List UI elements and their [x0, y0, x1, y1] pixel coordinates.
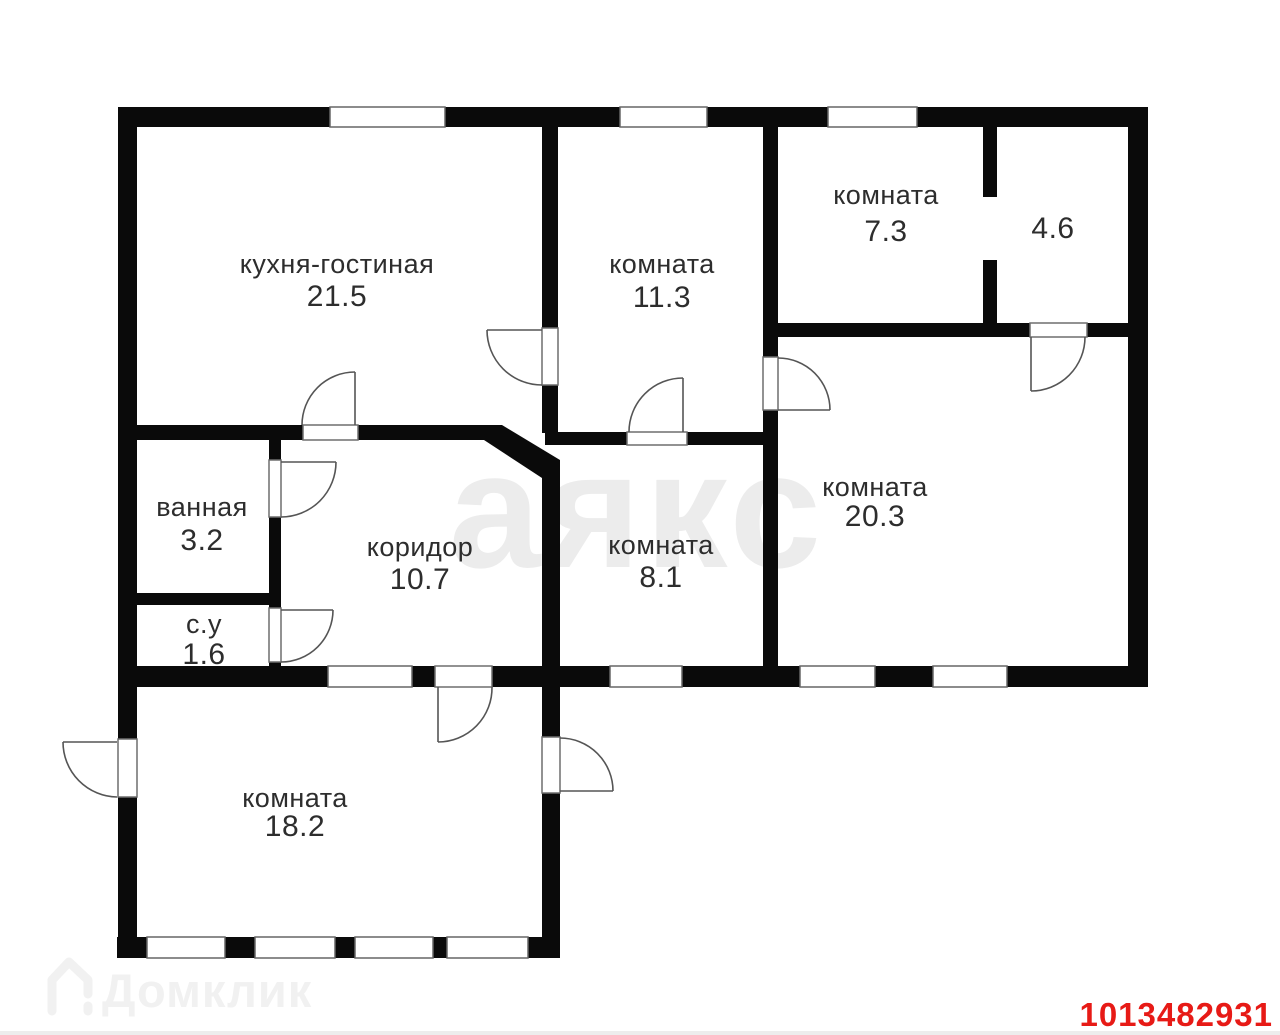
wall-segment — [542, 385, 558, 433]
wall-segment — [983, 127, 997, 197]
door-arc — [281, 462, 336, 517]
door-frame — [118, 739, 137, 797]
listing-id: 1013482931 — [1079, 996, 1273, 1033]
window — [800, 666, 875, 687]
wall-segment — [763, 410, 778, 666]
wall-segment — [118, 593, 281, 605]
door-arc — [63, 742, 117, 797]
wall-segment — [707, 107, 828, 127]
wall-segment — [917, 107, 1148, 127]
door-frame — [763, 357, 778, 410]
wall-segment — [118, 425, 303, 440]
wall-segment — [358, 425, 490, 440]
door-arc — [302, 372, 355, 425]
wall-segment — [682, 666, 800, 687]
door-frame — [269, 460, 281, 517]
wall-segment — [492, 666, 610, 687]
door-corridor-room18 — [435, 666, 492, 742]
door-arc — [778, 358, 830, 410]
room-area-room-11-3: 11.3 — [633, 281, 691, 314]
door-arc — [487, 330, 542, 385]
room-label-bathroom: ванная — [156, 492, 248, 522]
bottom-edge-line — [0, 1031, 1280, 1035]
door-frame — [269, 608, 281, 662]
wall-segment — [118, 107, 330, 127]
wall-segment — [335, 937, 355, 958]
door-arc — [1031, 337, 1085, 391]
room-area-wc: 1.6 — [182, 638, 225, 671]
door-room11-room20 — [763, 357, 830, 410]
door-frame — [542, 328, 558, 385]
room-label-kitchen-living: кухня-гостиная — [240, 249, 434, 279]
wall-segment — [225, 937, 255, 958]
room-area-kitchen-living: 21.5 — [307, 280, 367, 313]
room-area-room-7-3: 7.3 — [864, 215, 907, 248]
wall-segment — [687, 432, 763, 445]
domclick-wordmark: Домклик — [102, 964, 312, 1017]
room-label-room-7-3: комната — [833, 180, 939, 210]
wall-segment — [412, 666, 435, 687]
window — [328, 666, 412, 687]
wall-segment — [778, 323, 1030, 337]
floorplan-svg: аякс — [0, 0, 1280, 1035]
wall-segment — [1007, 666, 1148, 687]
room-label-room-11-3: комната — [609, 249, 715, 279]
room-area-bathroom: 3.2 — [180, 524, 223, 557]
wall-segment — [763, 127, 778, 357]
wall-segment — [269, 662, 281, 671]
door-kitchen-corridor — [302, 372, 358, 440]
window — [828, 107, 917, 127]
room-label-room-8-1: комната — [608, 530, 714, 560]
wall-segment — [542, 127, 558, 328]
window — [933, 666, 1007, 687]
wall-segment — [875, 666, 933, 687]
window — [147, 937, 225, 958]
door-frame — [1030, 323, 1087, 337]
domclick-house-icon — [52, 962, 88, 1011]
room-area-room-18-2: 18.2 — [265, 810, 325, 843]
window — [610, 666, 682, 687]
door-frame — [303, 425, 358, 440]
door-entrance-left — [63, 739, 137, 797]
door-wc — [269, 608, 333, 662]
window — [355, 937, 433, 958]
room-area-room-4-6: 4.6 — [1031, 212, 1074, 245]
room-area-room-8-1: 8.1 — [639, 561, 682, 594]
wall-segment — [542, 687, 560, 737]
room-label-room-18-2: комната — [242, 783, 348, 813]
wall-segment — [983, 260, 997, 323]
door-frame — [542, 737, 560, 793]
wall-segment — [545, 432, 627, 445]
domclick-logo: Домклик — [52, 962, 312, 1017]
wall-segment — [117, 937, 147, 958]
door-frame — [627, 432, 687, 445]
door-arc — [560, 738, 613, 791]
wall-segment — [1128, 107, 1148, 687]
window — [330, 107, 445, 127]
room-label-corridor: коридор — [367, 532, 474, 562]
door-arc — [438, 687, 492, 742]
door-frame — [435, 666, 492, 687]
room-label-wc: с.у — [186, 609, 222, 639]
room-area-corridor: 10.7 — [390, 563, 450, 596]
wall-segment — [269, 440, 281, 460]
wall-segment — [118, 797, 137, 958]
wall-segment — [269, 517, 281, 608]
door-entrance-right — [542, 737, 613, 793]
room-area-room-20-3: 20.3 — [845, 500, 905, 533]
wall-segment — [1087, 323, 1128, 337]
wall-segment — [433, 937, 447, 958]
window — [620, 107, 707, 127]
door-kitchen-room11 — [487, 328, 558, 385]
floorplan-page: аякс — [0, 0, 1280, 1035]
door-bathroom — [269, 460, 336, 517]
door-room11-room8 — [627, 378, 687, 445]
wall-segment — [445, 107, 620, 127]
room-label-room-20-3: комната — [822, 472, 928, 502]
door-room46-room20 — [1030, 323, 1087, 391]
door-arc — [281, 610, 333, 662]
wall-segment — [542, 460, 560, 666]
window — [255, 937, 335, 958]
window — [447, 937, 528, 958]
wall-segment — [542, 793, 560, 958]
wall-segment — [118, 107, 137, 739]
